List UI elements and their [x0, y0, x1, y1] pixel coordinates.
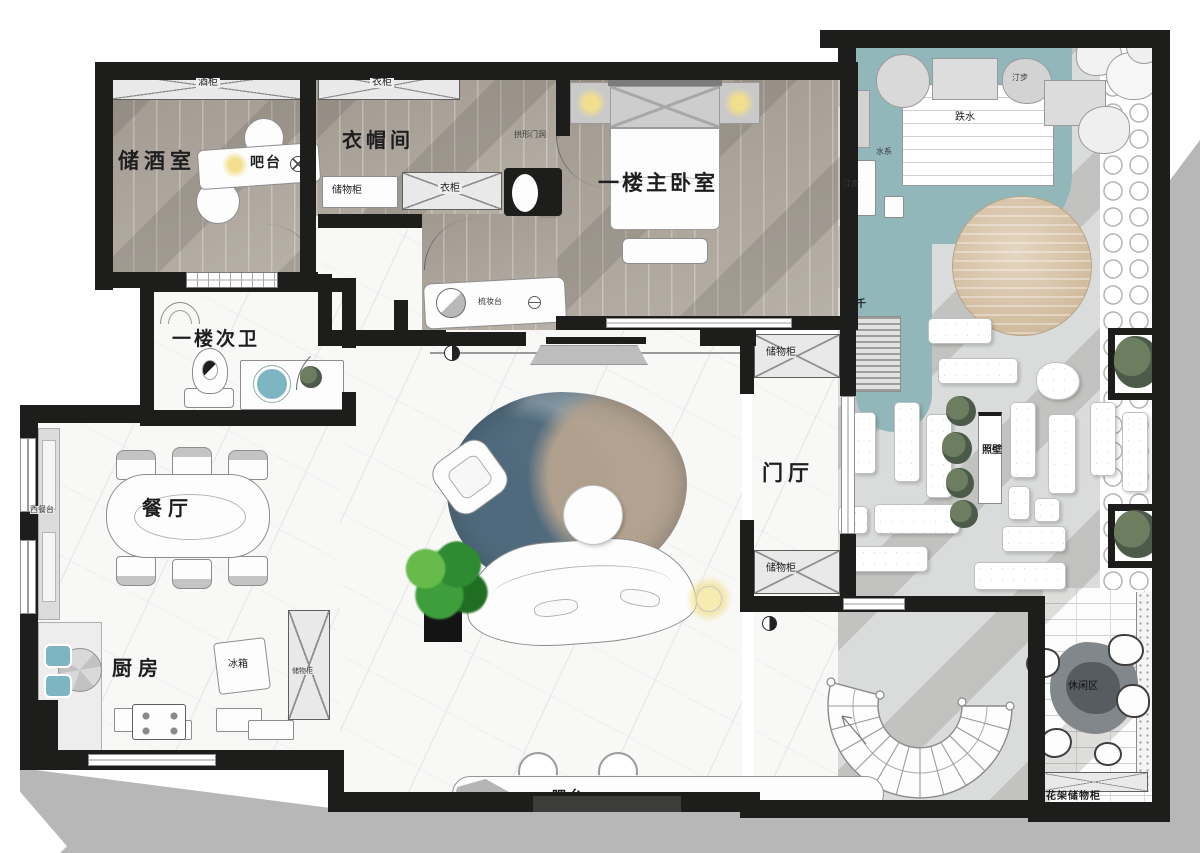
toilet-bowl-inner [202, 360, 218, 380]
garden-planter [928, 318, 992, 344]
kitchen-storage-label: 储物柜 [292, 668, 313, 675]
arched-doorway-label: 拱形门洞 [514, 131, 546, 139]
swing-label: 秋千 [846, 300, 866, 310]
kitchen-sink [44, 644, 72, 668]
water-table-round [876, 54, 930, 108]
garden-planter [846, 546, 928, 572]
wine-cabinet-label: 酒柜 [196, 78, 220, 88]
wall [1152, 30, 1170, 822]
wine-bar-lamp [222, 152, 248, 178]
water-system-label: 水系 [876, 148, 892, 156]
floor-plan: 跌水 汀步 水系 汀步 秋千 照壁 休闲区 花架 [0, 0, 1200, 853]
kitchen-window [88, 754, 216, 766]
wall [1043, 802, 1170, 822]
kitchen-stove [132, 704, 186, 740]
wine-bar-label: 吧台 [250, 156, 282, 170]
dining-chair [116, 556, 156, 586]
dining-window [20, 438, 36, 512]
dining-chair [228, 556, 268, 586]
wall [838, 30, 856, 78]
kitchen-island [248, 720, 294, 740]
kitchen-label: 厨房 [112, 658, 164, 678]
waterfall-label: 跌水 [955, 113, 975, 123]
garden-planter [1008, 486, 1030, 520]
dining-window [20, 540, 36, 614]
garden-planter [894, 402, 920, 482]
wall [20, 405, 146, 423]
wardrobe-top-label: 衣柜 [370, 78, 394, 88]
screen-wall-plants [942, 432, 972, 464]
screen-wall [978, 412, 1002, 504]
guest-bathroom-label: 一楼次卫 [172, 330, 260, 349]
garden-planter [1002, 526, 1066, 552]
wall [300, 62, 316, 274]
wall [95, 62, 113, 290]
stepping-stones-top-label: 汀步 [1012, 74, 1028, 82]
wall [840, 330, 856, 396]
foyer-storage-top-label: 储物柜 [766, 348, 796, 358]
water-bench-1 [932, 58, 998, 100]
flower-rack-cabinet [1040, 772, 1148, 792]
leisure-area-label: 休闲区 [1068, 682, 1098, 692]
garden-planter [874, 504, 960, 534]
wall [140, 278, 154, 426]
wall [840, 62, 858, 330]
tv-bar [546, 337, 646, 344]
screen-wall-plants [950, 500, 978, 528]
wall [820, 30, 1170, 48]
foyer-storage-bottom-label: 储物柜 [766, 564, 796, 574]
dining-side-slot [42, 532, 56, 602]
coffee-table [564, 486, 622, 544]
screen-wall-plants [946, 396, 976, 426]
tv-console [530, 345, 648, 365]
wall [318, 214, 422, 228]
garden-planter-round [1034, 498, 1060, 522]
fridge-label: 冰箱 [228, 660, 248, 670]
screen-wall-plants [946, 468, 974, 498]
wall [740, 800, 1045, 818]
stepping-stones-left-label: 汀步 [843, 180, 859, 188]
bed-lamp-left [576, 88, 606, 118]
wine-room-label: 储酒室 [118, 150, 196, 171]
garden-planter-round [1036, 362, 1080, 400]
garden-planter [852, 412, 876, 474]
entry-door [841, 396, 855, 534]
kitchen-sink [44, 674, 72, 698]
cloakroom-label: 衣帽间 [342, 130, 414, 150]
dining-side-slot [42, 440, 56, 510]
screen-wall-label: 照壁 [982, 446, 1002, 456]
dressing-mirror [436, 288, 466, 318]
garden-planter [974, 562, 1066, 590]
kitchen-tall-cabinet [288, 610, 330, 720]
garden-wood-deck [952, 196, 1092, 336]
garden-planter [1048, 414, 1076, 494]
wardrobe-inner-label: 衣柜 [438, 184, 462, 194]
flower-rack-label: 花架储物柜 [1046, 792, 1101, 802]
bed-pillow-area [610, 86, 720, 128]
bed-bench [622, 238, 708, 264]
compass-icon [444, 345, 460, 361]
master-bedroom-label: 一楼主卧室 [598, 172, 718, 193]
wall [328, 750, 344, 812]
dining-chair [172, 447, 212, 477]
shadow-right [1168, 140, 1200, 853]
wall [556, 80, 570, 136]
dining-room-label: 餐厅 [142, 498, 194, 518]
leisure-stone [1108, 634, 1144, 666]
wall [318, 330, 446, 346]
balcony-window [606, 318, 792, 328]
compass-icon [762, 616, 777, 631]
leisure-stone [1094, 742, 1122, 766]
laundry-basket [512, 174, 538, 212]
dressing-table-label: 梳妆台 [478, 298, 502, 306]
foyer-label: 门厅 [762, 462, 814, 483]
living-ceiling-lamp-ring [696, 586, 722, 612]
cloak-storage-label: 储物柜 [332, 186, 362, 196]
bed-lamp-right [724, 88, 754, 118]
plant-foliage [398, 538, 490, 626]
west-counter-label: 西餐台 [30, 506, 54, 514]
wall [140, 410, 356, 426]
wall [1028, 596, 1045, 822]
dressing-light-icon [528, 296, 541, 309]
garden-planter [1010, 402, 1036, 478]
stair-door [843, 598, 905, 610]
glass-block-window [186, 272, 278, 288]
shadow-kitchen [20, 768, 350, 853]
garden-planter [1090, 402, 1116, 476]
water-stone-right [1078, 106, 1130, 154]
bath-plant [300, 366, 322, 388]
wall [740, 330, 754, 394]
dining-chair [172, 559, 212, 589]
water-pad-small [884, 196, 904, 218]
wall [342, 392, 356, 426]
wall-recess [533, 796, 681, 812]
garden-planter [938, 358, 1018, 384]
garden-planter [1122, 412, 1148, 492]
bath-basin [254, 366, 290, 402]
leisure-stone [1116, 684, 1150, 718]
